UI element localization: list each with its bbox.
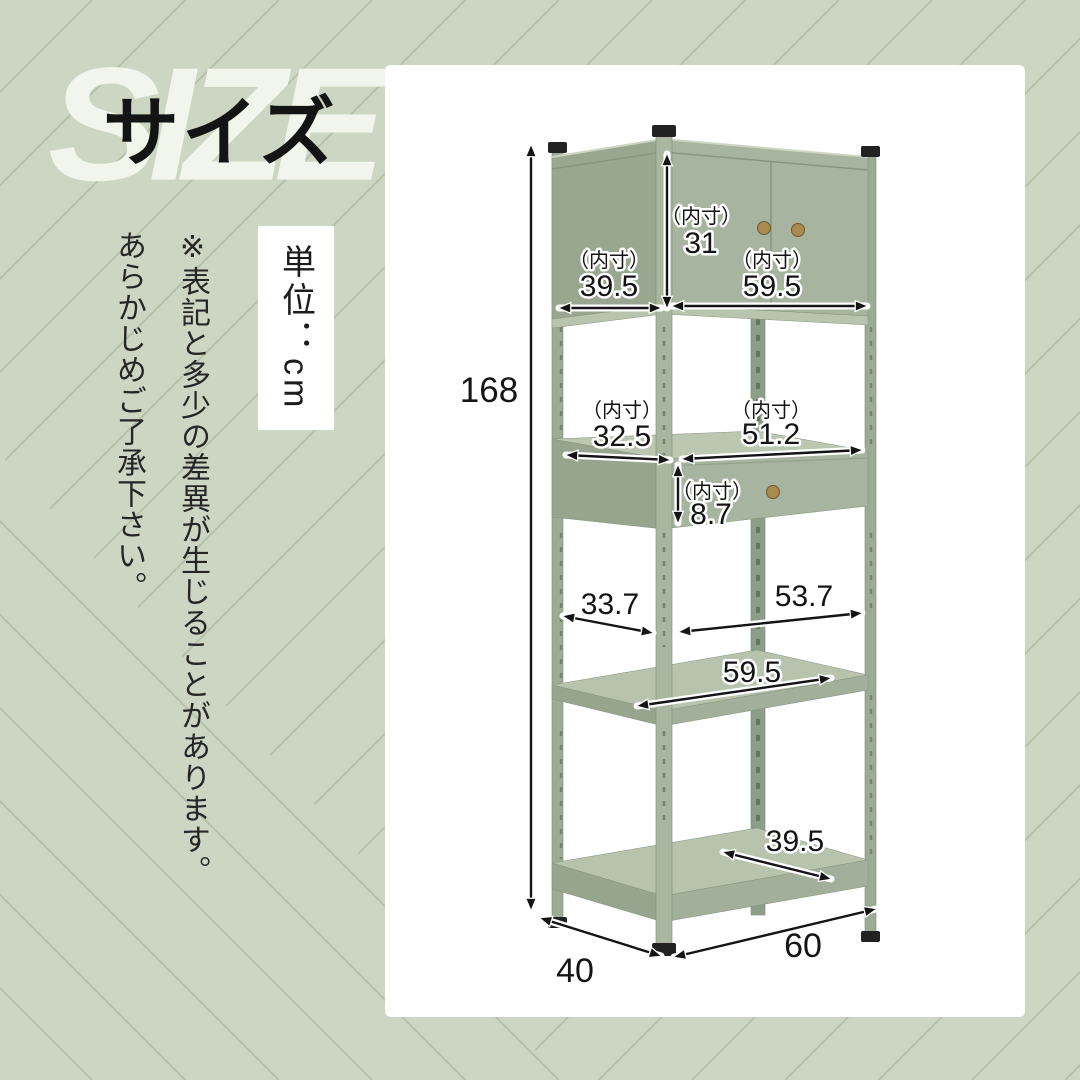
dim-bottom-shelf-width-value: 39.5 [766,825,824,858]
dim-shelf-width-value: 59.5 [723,656,781,689]
arrow-depth [540,918,661,956]
disclaimer-line-1: ※表記と多少の差異が生じることがあります。 [160,230,224,910]
dim-width-value: 60 [784,927,822,965]
corner-post-cap [652,125,676,137]
shelf-size-diagram: 168 （内寸） 39.5 （内寸） 31 （内寸） 59.5 （内寸） 32.… [385,65,1025,1017]
right-post-cap [861,146,880,157]
disclaimer-notes: ※表記と多少の差異が生じることがあります。 あらかじめご了承下さい。 [96,230,224,910]
right-door-knob [792,224,805,237]
dim-open-right-value: 53.7 [775,580,833,613]
dim-cabinet-left-inner-label: （内寸） [569,249,649,272]
dim-drawer-inner-value: 8.7 [690,498,732,531]
dim-cabinet-height-inner-label: （内寸） [661,205,741,228]
open-shelf [552,650,868,726]
dim-cabinet-right-inner-label: （内寸） [732,249,812,272]
product-size-card: 168 （内寸） 39.5 （内寸） 31 （内寸） 59.5 （内寸） 32.… [385,65,1025,1017]
dim-middle-left-inner-label: （内寸） [582,399,662,422]
arrow-width [674,909,876,957]
disclaimer-line-2: あらかじめご了承下さい。 [96,230,160,910]
dim-cabinet-left-inner-value: 39.5 [580,270,638,303]
arrow-open-right [679,613,862,632]
left-door-knob [758,222,771,235]
dim-cabinet-right-inner-value: 59.5 [743,270,801,303]
unit-box: 単位：cm [258,226,334,430]
drawer-knob [767,486,780,499]
dim-open-left-value: 33.7 [581,588,639,621]
arrow-middle-inner-left [566,455,670,460]
dim-middle-right-inner-value: 51.2 [742,418,800,451]
dim-depth-value: 40 [556,952,594,990]
unit-label: 単位：cm [272,244,321,411]
left-post-cap [548,142,567,153]
dim-total-height: 168 [460,371,518,410]
dim-middle-left-inner-value: 32.5 [593,420,651,453]
size-title-ja: サイズ [103,96,338,172]
right-post-foot [861,931,880,942]
dim-cabinet-height-inner-value: 31 [684,227,717,260]
